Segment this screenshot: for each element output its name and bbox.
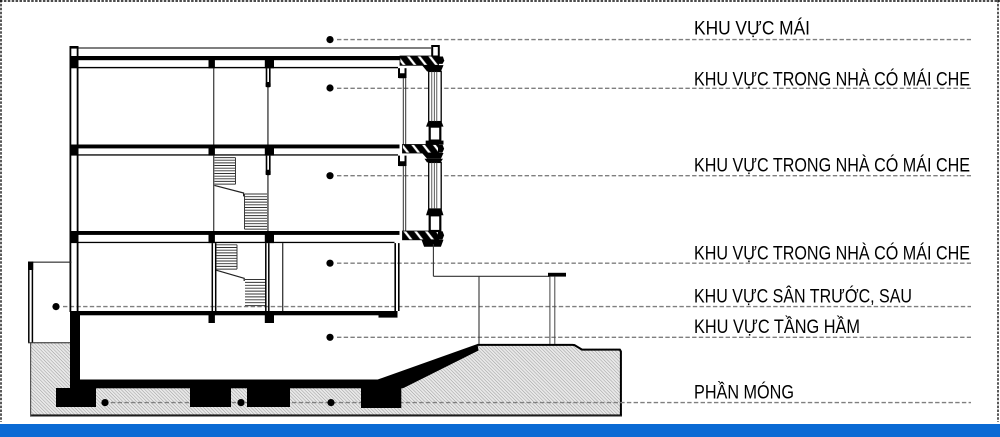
svg-text:KHU VỰC SÂN TRƯỚC, SAU: KHU VỰC SÂN TRƯỚC, SAU xyxy=(694,285,912,307)
svg-text:KHU VỰC TRONG NHÀ CÓ MÁI CHE: KHU VỰC TRONG NHÀ CÓ MÁI CHE xyxy=(694,155,970,177)
svg-text:KHU VỰC TRONG NHÀ CÓ MÁI CHE: KHU VỰC TRONG NHÀ CÓ MÁI CHE xyxy=(694,69,970,91)
svg-text:KHU VỰC TRONG NHÀ CÓ MÁI CHE: KHU VỰC TRONG NHÀ CÓ MÁI CHE xyxy=(694,243,970,265)
svg-text:KHU VỰC TẦNG HẦM: KHU VỰC TẦNG HẦM xyxy=(694,316,860,338)
svg-text:KHU VỰC MÁI: KHU VỰC MÁI xyxy=(694,18,810,39)
svg-text:PHẦN MÓNG: PHẦN MÓNG xyxy=(694,381,794,403)
